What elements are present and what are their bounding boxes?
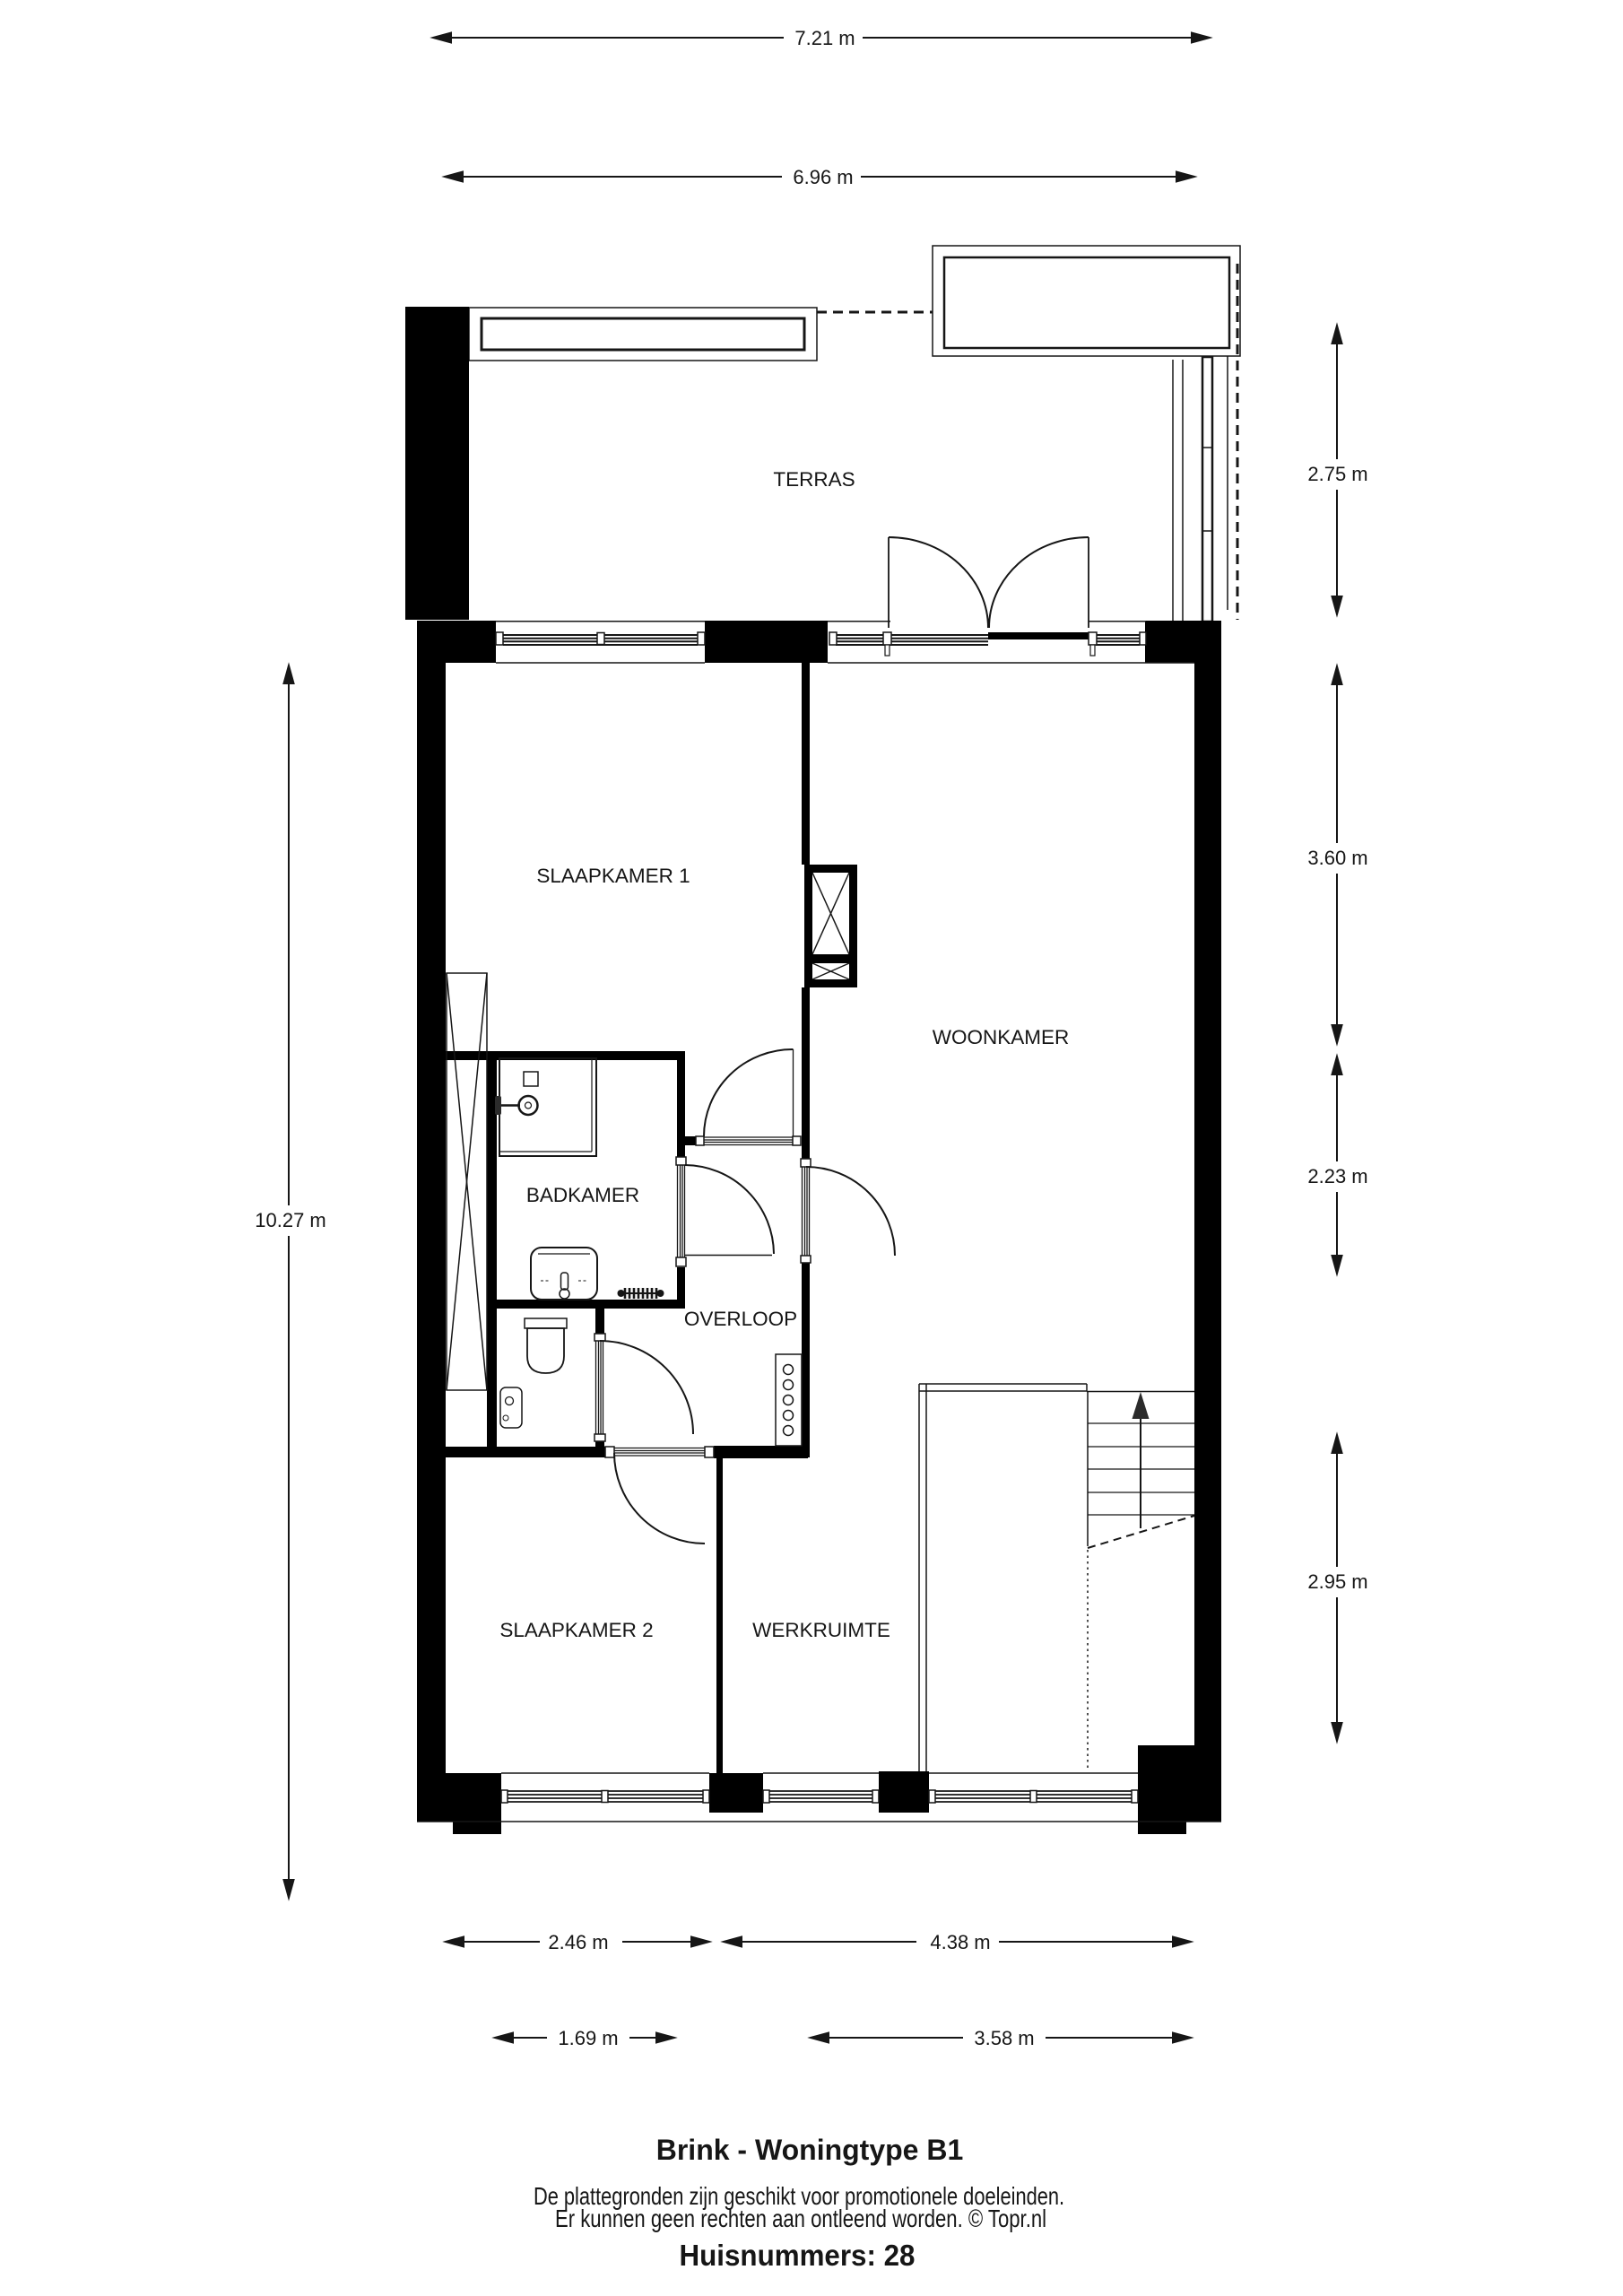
svg-text:2.46 m: 2.46 m: [548, 1931, 608, 1953]
svg-text:Brink - Woningtype B1: Brink - Woningtype B1: [656, 2134, 964, 2166]
svg-text:SLAAPKAMER 2: SLAAPKAMER 2: [499, 1619, 653, 1641]
svg-text:2.23 m: 2.23 m: [1307, 1165, 1367, 1187]
svg-text:7.21 m: 7.21 m: [794, 27, 855, 49]
svg-text:SLAAPKAMER 1: SLAAPKAMER 1: [536, 865, 690, 887]
svg-text:WERKRUIMTE: WERKRUIMTE: [752, 1619, 890, 1641]
svg-text:2.75 m: 2.75 m: [1307, 463, 1367, 485]
svg-text:OVERLOOP: OVERLOOP: [684, 1308, 797, 1330]
svg-text:4.38 m: 4.38 m: [930, 1931, 990, 1953]
svg-text:1.69 m: 1.69 m: [558, 2027, 618, 2049]
svg-text:6.96 m: 6.96 m: [793, 166, 853, 188]
svg-text:WOONKAMER: WOONKAMER: [933, 1026, 1070, 1048]
svg-text:10.27 m: 10.27 m: [255, 1209, 326, 1231]
svg-text:2.95 m: 2.95 m: [1307, 1570, 1367, 1593]
svg-text:BADKAMER: BADKAMER: [526, 1184, 639, 1206]
svg-text:3.58 m: 3.58 m: [974, 2027, 1034, 2049]
svg-text:3.60 m: 3.60 m: [1307, 847, 1367, 869]
svg-text:Er kunnen geen rechten aan ont: Er kunnen geen rechten aan ontleend word…: [555, 2205, 1046, 2233]
svg-text:TERRAS: TERRAS: [773, 468, 855, 491]
svg-text:Huisnummers: 28: Huisnummers: 28: [680, 2239, 916, 2272]
